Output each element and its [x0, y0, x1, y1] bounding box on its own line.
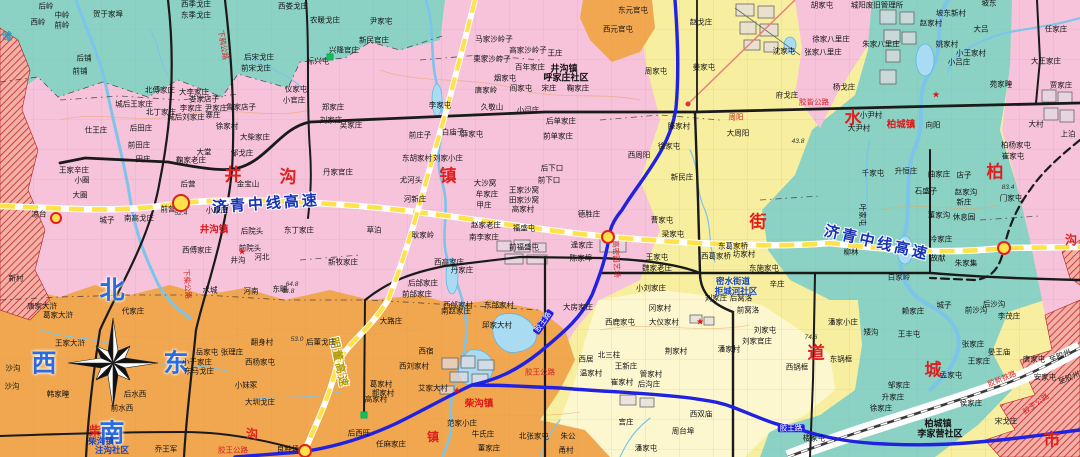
map-label: 小官庄 [283, 96, 306, 104]
map-label: 滕家村 [668, 122, 691, 130]
topographic-map: 济青中线高速济青中线高速明董高速下鸦公路下柴公路胶皆公路胶王公路胶王公路胶王公路… [0, 0, 1080, 457]
map-label: 陈家埠 [570, 254, 593, 262]
map-label: 苑家疃 [990, 80, 1013, 88]
map-label: 井沟 [231, 256, 246, 264]
map-label: 井沟镇 [200, 225, 229, 235]
map-label: 尹家庄 [205, 104, 228, 112]
map-label: 潘家小庄 [828, 318, 858, 326]
map-label: 前院头 [239, 244, 262, 252]
map-label: 济青中线高速 [823, 224, 932, 263]
map-label: 后岭 [39, 2, 54, 10]
map-label: 娄家店子 [189, 95, 219, 103]
map-label: 崔家村 [611, 378, 634, 386]
map-label: 至胶州 [1048, 348, 1072, 363]
map-label: 王丰屯 [898, 330, 921, 338]
map-label: 沟 [246, 428, 258, 440]
map-label: 楼家屯 [803, 434, 826, 442]
map-label: 店子 [957, 171, 972, 179]
map-label: 东葛家桥 [718, 242, 748, 250]
map-label: 荆家村 [665, 347, 688, 355]
map-label: 大圈 [73, 191, 88, 199]
map-label: 李家营社区 [917, 430, 962, 439]
map-label: 矮沟 [864, 328, 879, 336]
map-label: 下柴公路 [182, 269, 192, 300]
map-label: 王家辛庄 [59, 166, 89, 174]
map-label: 胶王公路 [525, 368, 555, 376]
map-label: 温家村 [580, 369, 603, 377]
map-label: 市 [1044, 432, 1061, 449]
map-label: 后窝洛 [730, 294, 753, 302]
map-label: 丹家官庄 [323, 168, 353, 176]
map-label: 高家村 [365, 395, 388, 403]
map-label: 后营 [181, 180, 196, 188]
map-label: 沙沟 [6, 364, 21, 372]
map-label: 金宝山 [237, 180, 260, 188]
map-label: 甬村 [559, 446, 574, 454]
map-label: 张家八里庄 [804, 48, 842, 56]
map-label: 代家庄 [122, 307, 145, 315]
map-label: 府戈庄 [776, 91, 799, 99]
map-label: 王庄 [548, 49, 563, 57]
map-label: 西居 [579, 355, 594, 363]
map-label: 丹家庄 [451, 266, 474, 274]
map-label: 44.8 [282, 289, 295, 296]
map-label: 南赵家庄 [441, 307, 471, 315]
map-label: 沟 [280, 169, 297, 186]
map-label: 河新庄 [404, 195, 427, 203]
map-label: 白家岭 [888, 273, 911, 281]
map-label: 张家庄 [962, 340, 985, 348]
map-label: 宋庄 [542, 84, 557, 92]
map-label: 梁家屯 [662, 230, 685, 238]
map-label: 向阳 [926, 121, 941, 129]
map-label: 南李家庄 [469, 233, 499, 241]
map-label: 郑家庄 [322, 103, 345, 111]
map-label: 东季戈庄 [181, 11, 211, 19]
map-label: 西元官屯 [603, 25, 633, 33]
map-label: 柏城镇 [924, 420, 951, 429]
map-label: 后董戈庄 [306, 338, 336, 346]
map-label: 朱家八里庄 [862, 40, 900, 48]
map-label: 前岭 [55, 21, 70, 29]
map-label: 朱公 [561, 432, 576, 440]
map-label: 董家沟 [928, 211, 951, 219]
interchange-marker-icon [172, 194, 190, 212]
map-label: 良种场 [277, 445, 300, 453]
map-label: 东邰家村 [484, 301, 514, 309]
map-label: 后邰家庄 [408, 279, 438, 287]
map-label: 64.8 [286, 282, 299, 289]
map-label: 福盛屯 [513, 224, 536, 232]
map-label: 大路庄 [380, 317, 403, 325]
map-label: 前田庄 [128, 141, 151, 149]
map-label: 后院头 [241, 227, 264, 235]
map-label: 仪家屯 [285, 85, 308, 93]
map-label: 冈家村 [649, 304, 672, 312]
map-label: 百年家庄 [515, 63, 545, 71]
map-label: 薛家屯 [461, 130, 484, 138]
map-label: 胶王路 [778, 424, 805, 432]
map-label: 北傅家庄 [145, 86, 175, 94]
map-label: 董家庄 [478, 444, 501, 452]
map-label: 宋戈庄 [995, 417, 1018, 425]
map-label: 徐家村 [216, 122, 239, 130]
map-label: 至胶州 [1057, 370, 1080, 385]
map-label: 83.4 [1002, 185, 1015, 192]
map-label: 王家大浒 [55, 339, 85, 347]
map-label: 后水西 [124, 390, 147, 398]
map-label: 赵家村 [920, 19, 943, 27]
map-label: 胶王公路 [1022, 392, 1051, 415]
map-label: 高家村 [512, 205, 535, 213]
map-label: 呼家庄社区 [543, 74, 588, 83]
map-label: 曲家庄 [928, 170, 951, 178]
map-label: 拒城河社区 [715, 287, 758, 296]
town-seat-star-icon: ★ [932, 90, 940, 101]
map-label: 乔王军 [155, 445, 178, 453]
map-label: 坡东 [982, 0, 997, 7]
map-label: 小闫庄 [517, 106, 540, 114]
map-label: 李茂庄 [998, 312, 1021, 320]
map-label: 柏杨家屯 [1001, 141, 1031, 149]
map-label: 井沟镇 [550, 65, 577, 74]
map-label: 赖家庄 [902, 307, 925, 315]
map-label: 仕王庄 [85, 126, 108, 134]
map-label: 唐家屯 [1023, 355, 1046, 363]
map-label: 南高戈庄 [124, 214, 154, 222]
map-label: 兴隆官庄 [329, 46, 359, 54]
map-label: 井 [225, 167, 242, 184]
map-label: 城子 [100, 216, 115, 224]
interchange-marker-icon [601, 230, 615, 244]
map-label: 沙沟 [5, 382, 20, 390]
map-label: 小妹冢 [235, 381, 258, 389]
map-label: 贺于家埠 [93, 10, 123, 18]
map-label: 小圈 [75, 176, 90, 184]
map-label: 街 [750, 214, 767, 231]
map-label: 任家庄 [1045, 25, 1068, 33]
map-label: 赵家沟 [955, 188, 978, 196]
map-label: 吴家庄 [340, 121, 363, 129]
map-label: 魏家老庄 [642, 264, 672, 272]
map-label: 西宿 [419, 347, 434, 355]
map-label: 周家屯 [645, 67, 668, 75]
map-label: 下鸦公路 [217, 30, 230, 61]
map-label: 唐家大浒 [27, 302, 57, 310]
map-label: 前庄子 [409, 131, 432, 139]
town-seat-star-icon: ★ [453, 386, 461, 397]
map-label: 东丁家庄 [284, 226, 314, 234]
map-label: 坡东新村 [936, 9, 966, 17]
map-label: 王家庄 [968, 357, 991, 365]
map-label: 西周阳 [628, 151, 651, 159]
map-label: 坊家村 [733, 250, 756, 258]
map-label: 李家屯 [429, 101, 452, 109]
map-label: 后西旺 [348, 429, 371, 437]
map-label: 孟家屯 [940, 371, 963, 379]
map-label: 前窝洛 [737, 306, 760, 314]
map-label: 阎家屯 [510, 84, 533, 92]
map-label: 水 [845, 110, 862, 127]
map-label: 胶皆公路 [799, 98, 829, 106]
map-label: 马家沙岭子 [475, 35, 513, 43]
map-label: 岳家屯 [196, 348, 219, 356]
map-label: 大李家庄 [179, 88, 209, 96]
map-label: 西娄戈庄 [278, 2, 308, 10]
map-label: 大王家庄 [1031, 57, 1061, 65]
map-label: 东胡家村 [402, 154, 432, 162]
map-label: 翻身村 [251, 338, 274, 346]
map-label: 中岭 [55, 11, 70, 19]
map-label: 上泊 [1061, 130, 1076, 138]
map-label: 前邰家庄 [402, 290, 432, 298]
map-label: 东马戈庄 [184, 367, 214, 375]
map-label: 韩家疃 [47, 390, 70, 398]
map-label: 胡家屯 [811, 1, 834, 9]
labels-layer: 济青中线高速济青中线高速明董高速下鸦公路下柴公路胶皆公路胶王公路胶王公路胶王公路… [0, 0, 1080, 457]
map-label: 大尹村 [848, 124, 871, 132]
map-label: 升家庄 [882, 393, 905, 401]
map-label: 千家屯 [862, 169, 885, 177]
map-label: 北 [99, 279, 124, 304]
map-label: 大柴家庄 [240, 133, 270, 141]
map-label: 西刘家村 [399, 362, 429, 370]
map-label: 潍 [2, 33, 12, 43]
station-dot-icon [686, 102, 691, 107]
map-label: 密水街道 [716, 277, 750, 286]
map-label: 曹家屯 [651, 216, 674, 224]
map-label: 叶家屯 [858, 204, 866, 227]
map-label: 邹戈庄 [231, 149, 254, 157]
map-label: 河南 [244, 287, 259, 295]
map-label: 后宋戈庄 [244, 53, 274, 61]
map-label: 柴 [89, 425, 101, 437]
map-label: 西岭 [31, 18, 46, 26]
map-label: 潘家村 [718, 345, 741, 353]
map-label: 前福盛屯 [509, 243, 539, 251]
map-label: 后沙沟 [983, 300, 1006, 308]
map-label: 门家屯 [1000, 194, 1023, 202]
map-label: 胶新铁路 [987, 370, 1018, 388]
map-label: 小王家村 [956, 49, 986, 57]
interchange-marker-icon [298, 444, 312, 457]
map-label: 姜家屯 [693, 63, 716, 71]
map-label: 注沟社区 [95, 446, 129, 455]
map-label: 新民官庄 [359, 36, 389, 44]
map-label: 郝家村 [372, 389, 395, 397]
map-label: 唐家岭 [475, 86, 498, 94]
map-label: 镇 [427, 431, 439, 443]
map-label: 前铺 [73, 67, 88, 75]
map-label: 鞠家老庄 [176, 156, 206, 164]
map-label: 水城 [203, 286, 218, 294]
map-label: 朱家集 [955, 259, 978, 267]
town-seat-star-icon: ★ [238, 247, 246, 258]
map-label: 沟 [1065, 234, 1077, 246]
map-label: 前沙沟 [965, 306, 988, 314]
map-label: 尤河头 [400, 176, 423, 184]
map-label: 城后王家庄 [115, 100, 153, 108]
map-label: 侯家庄 [960, 399, 983, 407]
map-label: 74.6 [805, 335, 818, 342]
map-label: 寨庄 [206, 111, 221, 119]
map-label: 高密园艺场 [611, 240, 620, 278]
map-label: 南 [99, 422, 124, 447]
map-label: 刘家小庄 [433, 154, 463, 162]
map-label: 东元官屯 [618, 6, 648, 14]
map-label: 西 [31, 352, 56, 377]
map-label: 高家沙岭子 [509, 46, 547, 54]
map-label: 潘家屯 [635, 444, 658, 452]
map-label: 休息园 [953, 213, 976, 221]
interchange-marker-icon [50, 212, 62, 224]
map-label: 道 [808, 345, 825, 362]
map-label: 鲁家店子 [226, 103, 256, 111]
map-label: 管家村 [640, 370, 663, 378]
map-label: 徐家八里庄 [812, 35, 850, 43]
map-label: 田庄 [136, 155, 151, 163]
map-label: 新民庄 [671, 173, 694, 181]
map-label: 白庙子 [442, 128, 465, 136]
map-label: 东施家屯 [749, 264, 779, 272]
map-label: 刘家庄 [320, 116, 343, 124]
map-label: 城子 [937, 301, 952, 309]
map-label: 石盛子 [915, 187, 938, 195]
map-label: 刘家庄 [705, 294, 728, 302]
map-label: 柳林 [844, 248, 859, 256]
map-label: 葛家村 [370, 380, 393, 388]
map-label: 刘家屯 [754, 326, 777, 334]
map-label: 新村 [9, 274, 24, 282]
map-label: 西高家庄 [434, 258, 464, 266]
map-label: 城阳废旧管理所 [851, 1, 904, 9]
junction-dot-icon [361, 412, 368, 419]
map-label: 大周阳 [727, 129, 750, 137]
map-label: 西傅家庄 [182, 246, 212, 254]
map-label: 后沟庄 [638, 380, 661, 388]
map-label: 故献 [931, 254, 946, 262]
map-label: 李家庄 [180, 104, 203, 112]
map-label: 镇 [440, 168, 457, 185]
map-label: 久敬山 [481, 103, 504, 111]
map-label: 西鹿家屯 [605, 318, 635, 326]
map-label: 任麻家庄 [376, 440, 406, 448]
map-label: 赵戈庄 [690, 18, 713, 26]
map-label: 王家屯 [646, 253, 669, 261]
map-label: 柴沟镇 [465, 399, 494, 409]
map-label: 北张家屯 [519, 432, 549, 440]
map-label: 北丁家庄 [146, 108, 176, 116]
map-label: 周台埠 [672, 427, 695, 435]
map-label: 王新庄 [615, 362, 638, 370]
map-label: 张理庄 [221, 348, 244, 356]
map-label: 明董高速 [327, 336, 349, 389]
map-label: 小吕庄 [948, 58, 971, 66]
map-label: 大房家庄 [563, 303, 593, 311]
map-label: 牟家庄 [476, 190, 499, 198]
map-label: 大堂 [197, 148, 212, 156]
map-label: 安家屯 [1034, 373, 1057, 381]
map-label: 52.4 [175, 211, 188, 218]
map-label: 徐家庄 [870, 404, 893, 412]
map-label: 后单家庄 [546, 117, 576, 125]
map-label: 杨戈庄 [833, 83, 856, 91]
map-label: 农暖戈庄 [310, 16, 340, 24]
map-label: 城后刘家庄 [167, 113, 205, 121]
map-label: 前营 [161, 205, 176, 213]
map-label: 艾家大村 [418, 384, 448, 392]
map-label: 东锅框 [830, 355, 853, 363]
map-label: 大吕 [974, 25, 989, 33]
map-label: 小于家庄 [182, 358, 212, 366]
map-label: 栗家沙岭子 [473, 55, 511, 63]
map-label: 胶王路 [532, 309, 553, 335]
map-label: 烟家屯 [494, 74, 517, 82]
map-label: 宫庄 [619, 418, 634, 426]
map-label: 贾家庄 [1050, 81, 1073, 89]
map-label: 河北 [255, 253, 270, 261]
map-label: 尹家宅 [370, 17, 393, 25]
map-label: 东疃 [273, 285, 288, 293]
map-label: 大村 [1029, 120, 1044, 128]
map-label: 西双庙 [690, 410, 713, 418]
map-label: 姚家村 [936, 40, 959, 48]
map-label: 53.0 [291, 337, 304, 344]
map-label: 柏 [987, 164, 1004, 181]
map-label: 王家沙窝 [509, 186, 539, 194]
map-label: 后铺 [77, 54, 92, 62]
map-label: 赵家老庄 [471, 221, 501, 229]
map-label: 辛庄 [770, 280, 785, 288]
map-label: 济青中线高速 [212, 193, 321, 215]
map-label: 43.8 [792, 139, 805, 146]
map-label: 新庄 [957, 198, 972, 206]
junction-dot-icon [327, 54, 334, 61]
map-label: 大沙窝 [474, 179, 497, 187]
map-label: 前单家庄 [543, 132, 573, 140]
map-label: 周阳 [729, 113, 744, 121]
map-label: 冷家庄 [930, 235, 953, 243]
map-label: 大仪家村 [649, 318, 679, 326]
map-label: 小尹村 [860, 111, 883, 119]
map-label: 后田庄 [130, 124, 153, 132]
map-label: 德胜庄 [578, 210, 601, 218]
map-label: 邹家庄 [888, 381, 911, 389]
map-label: 大圳戈庄 [245, 398, 275, 406]
map-label: 胶王公路 [218, 446, 248, 454]
map-label: 前下口 [538, 176, 561, 184]
map-label: 后下口 [541, 164, 564, 172]
map-label: 凉台 [32, 210, 47, 218]
map-label: 柴沟镇 [88, 437, 114, 446]
map-label: 标兴屯 [307, 57, 330, 65]
map-label: 鞠家庄 [567, 84, 590, 92]
map-label: 升恒庄 [895, 167, 918, 175]
map-label: 晏王庙 [988, 348, 1011, 356]
map-label: 草泊 [367, 226, 382, 234]
map-label: 西邰家村 [443, 301, 473, 309]
map-label: 新牧家庄 [328, 258, 358, 266]
map-label: 前水西 [111, 404, 134, 412]
map-label: 葛家大浒 [43, 311, 73, 319]
map-label: 耿家岭 [412, 231, 435, 239]
map-label: 小康庄 [206, 206, 229, 214]
map-label: 逄家庄 [571, 241, 594, 249]
map-label: 西杨家屯 [245, 358, 275, 366]
map-label: 北三柱 [598, 351, 621, 359]
map-label: 崔家屯 [1002, 152, 1025, 160]
map-label: 城 [925, 362, 942, 379]
